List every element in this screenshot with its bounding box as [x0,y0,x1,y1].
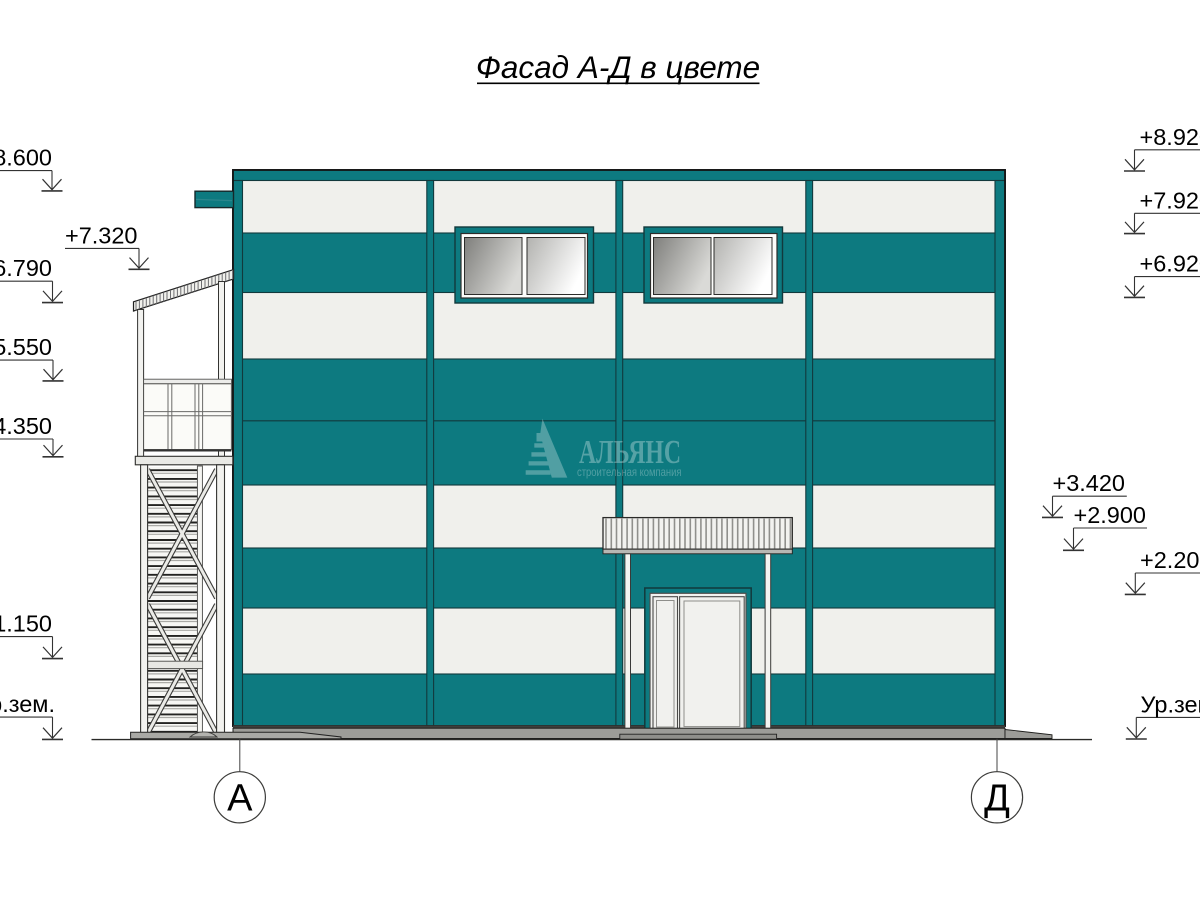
svg-text:+8.920: +8.920 [1140,124,1200,150]
svg-text:+7.920: +7.920 [1140,187,1200,213]
svg-text:+7.320: +7.320 [65,222,138,248]
svg-text:+6.920: +6.920 [1140,251,1200,277]
svg-text:А: А [227,778,253,820]
svg-text:Д: Д [984,778,1010,820]
svg-text:+6.790: +6.790 [0,255,52,281]
svg-text:+5.550: +5.550 [0,334,52,360]
svg-text:+2.900: +2.900 [1073,502,1146,528]
svg-text:+4.350: +4.350 [0,413,52,439]
svg-text:Ур.зем.: Ур.зем. [0,691,55,717]
svg-text:Фасад А-Д в цвете: Фасад А-Д в цвете [476,49,760,85]
svg-text:+1.150: +1.150 [0,611,52,637]
svg-text:Ур.зем.: Ур.зем. [1141,691,1200,717]
svg-text:+8.600: +8.600 [0,145,52,171]
svg-text:строительная компания: строительная компания [577,465,682,479]
svg-text:+2.200: +2.200 [1140,547,1200,573]
svg-text:+3.420: +3.420 [1052,470,1125,496]
